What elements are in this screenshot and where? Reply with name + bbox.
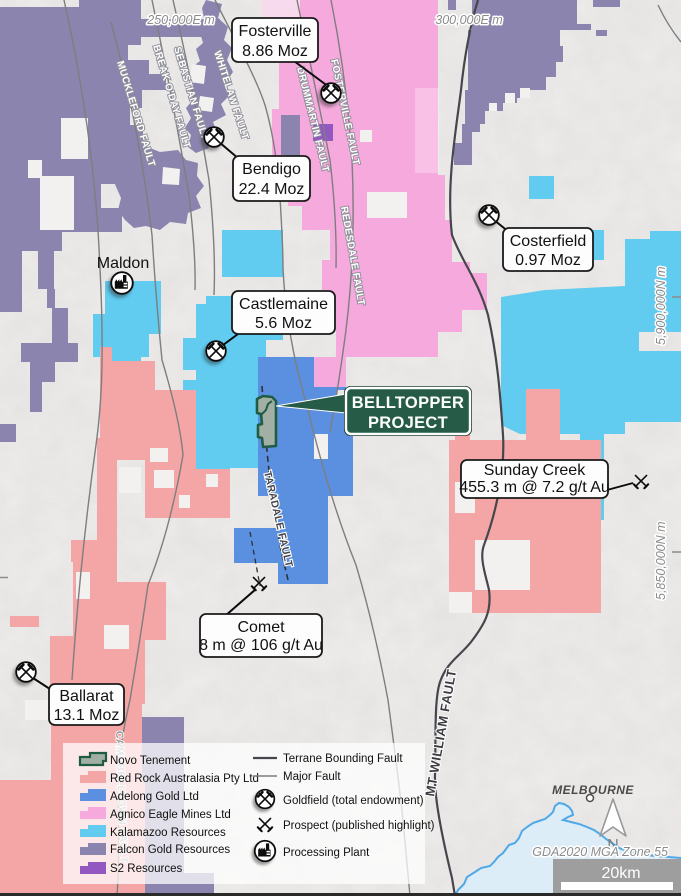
svg-text:MELBOURNE: MELBOURNE [552,783,634,797]
svg-text:Ballarat: Ballarat [59,688,114,705]
svg-text:Comet: Comet [237,619,285,636]
svg-text:Fosterville: Fosterville [239,23,312,40]
svg-text:5.6 Moz: 5.6 Moz [255,315,312,332]
svg-text:S2 Resources: S2 Resources [110,863,182,875]
svg-text:13.1 Moz: 13.1 Moz [54,707,120,724]
svg-text:Processing Plant: Processing Plant [283,847,370,859]
svg-text:Prospect (published highlight): Prospect (published highlight) [283,820,435,832]
svg-text:Kalamazoo Resources: Kalamazoo Resources [110,827,226,839]
svg-text:22.4 Moz: 22.4 Moz [239,181,305,198]
svg-text:250,000E m: 250,000E m [146,13,214,27]
svg-text:20km: 20km [601,865,640,882]
svg-text:Terrane Bounding Fault: Terrane Bounding Fault [283,753,403,765]
svg-text:Red Rock Australasia Pty Ltd: Red Rock Australasia Pty Ltd [110,773,259,785]
svg-text:Sunday Creek: Sunday Creek [484,462,586,479]
svg-text:8.86 Moz: 8.86 Moz [242,43,308,60]
svg-text:455.3 m @ 7.2 g/t Au: 455.3 m @ 7.2 g/t Au [459,479,610,496]
svg-text:Novo Tenement: Novo Tenement [110,755,191,767]
svg-text:0.97 Moz: 0.97 Moz [515,252,581,269]
svg-text:Goldfield (total endowment): Goldfield (total endowment) [283,795,424,807]
svg-text:300,000E m: 300,000E m [435,13,502,27]
svg-text:Costerfield: Costerfield [510,233,586,250]
svg-text:GDA2020 MGA Zone 55: GDA2020 MGA Zone 55 [532,845,668,859]
svg-text:BELLTOPPER: BELLTOPPER [352,394,464,412]
svg-text:8 m @ 106 g/t Au: 8 m @ 106 g/t Au [199,637,323,654]
svg-text:5,850,000N m: 5,850,000N m [654,521,668,600]
svg-text:Castlemaine: Castlemaine [239,296,328,313]
svg-text:PROJECT: PROJECT [368,414,448,432]
svg-text:Adelong Gold Ltd: Adelong Gold Ltd [110,791,199,803]
svg-text:Agnico Eagle Mines Ltd: Agnico Eagle Mines Ltd [110,809,231,821]
svg-text:Major Fault: Major Fault [283,771,341,783]
svg-text:Bendigo: Bendigo [242,161,301,178]
svg-text:5,900,000N m: 5,900,000N m [654,266,668,345]
svg-text:Maldon: Maldon [97,255,149,272]
svg-text:Falcon Gold Resources: Falcon Gold Resources [110,844,230,856]
